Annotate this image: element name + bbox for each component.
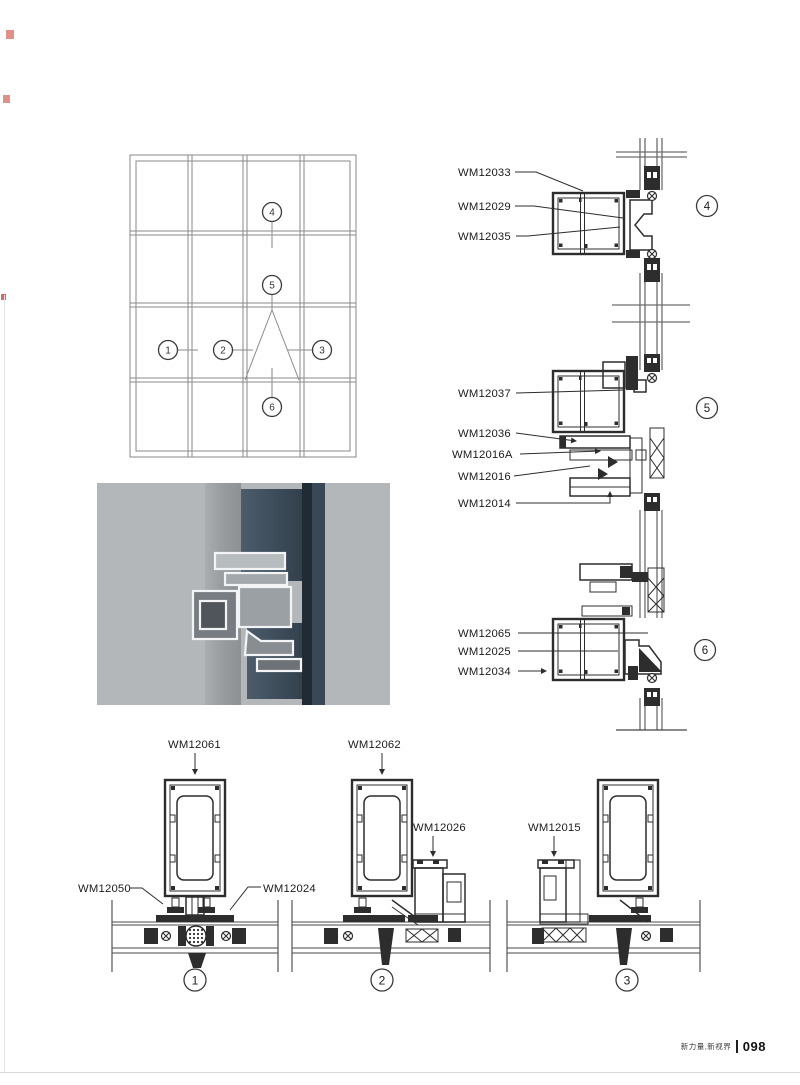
mullion-profile — [598, 780, 658, 896]
part-label: WM12016 — [458, 471, 511, 483]
curtainwall-grid — [130, 155, 356, 457]
part-label: WM12014 — [458, 498, 511, 510]
part-label: WM12024 — [263, 883, 316, 895]
fastener-icon — [648, 192, 657, 201]
part-label: WM12033 — [458, 167, 511, 179]
transom-profile — [553, 619, 624, 680]
section-detail-4: WM12033 WM12029 WM12035 4 — [458, 166, 718, 282]
part-label: WM12026 — [413, 822, 466, 834]
horizontal-sections-drawing: WM12061 WM12050 WM12024 1 — [60, 732, 760, 1008]
page-footer: 新力量,新视界 098 — [681, 1039, 766, 1054]
part-label: WM12036 — [458, 428, 511, 440]
part-label: WM12025 — [458, 646, 511, 658]
callout-4-number: 4 — [269, 208, 275, 219]
fastener-icon — [162, 932, 171, 941]
detail-2-number: 2 — [379, 974, 386, 988]
part-label: WM12029 — [458, 201, 511, 213]
fastener-icon — [222, 932, 231, 941]
mullion-profile — [352, 780, 412, 896]
bottom-rule — [0, 1072, 800, 1073]
fastener-icon — [648, 250, 657, 259]
callout-2-number: 2 — [220, 346, 226, 357]
callout-6-number: 6 — [269, 403, 275, 414]
part-label: WM12037 — [458, 388, 511, 400]
fastener-icon — [648, 674, 657, 683]
elevation-drawing: 4 5 1 2 3 6 — [128, 152, 360, 464]
section-detail-5: WM12037 WM12036 WM12016A WM12016 WM12014… — [452, 354, 718, 511]
profile-render-image — [97, 483, 390, 705]
vertical-sections-drawing: WM12033 WM12029 WM12035 4 — [440, 138, 750, 734]
section-detail-3: WM12015 3 — [528, 780, 673, 991]
catalog-page: 4 5 1 2 3 6 — [0, 0, 800, 1085]
detail-6-number: 6 — [702, 645, 708, 657]
print-mark — [3, 95, 10, 103]
part-label: WM12050 — [78, 883, 131, 895]
part-label: WM12016A — [452, 449, 513, 461]
mullion-profile — [165, 780, 225, 896]
part-label: WM12034 — [458, 666, 511, 678]
callout-1-number: 1 — [165, 346, 171, 357]
detail-4-number: 4 — [704, 201, 711, 213]
part-label: WM12062 — [348, 739, 401, 751]
part-label: WM12035 — [458, 231, 511, 243]
footer-slogan: 新力量,新视界 — [681, 1041, 732, 1052]
detail-5-number: 5 — [704, 403, 710, 415]
section-detail-6: WM12065 WM12025 WM12034 6 — [458, 564, 716, 706]
thermal-break-core — [186, 926, 206, 946]
fastener-icon — [642, 932, 651, 941]
print-mark — [6, 30, 14, 39]
page-edge-line — [4, 295, 5, 1072]
fastener-icon — [648, 374, 657, 383]
callout-3-number: 3 — [319, 346, 325, 357]
frame-profile — [553, 371, 624, 432]
transom-profile — [553, 193, 624, 254]
page-number: 098 — [743, 1039, 766, 1054]
part-label: WM12015 — [528, 822, 581, 834]
part-label: WM12061 — [168, 739, 221, 751]
detail-3-number: 3 — [624, 974, 631, 988]
footer-divider — [736, 1040, 738, 1053]
detail-1-number: 1 — [192, 974, 199, 988]
callout-5-number: 5 — [269, 281, 275, 292]
fastener-icon — [344, 932, 353, 941]
part-label: WM12065 — [458, 628, 511, 640]
